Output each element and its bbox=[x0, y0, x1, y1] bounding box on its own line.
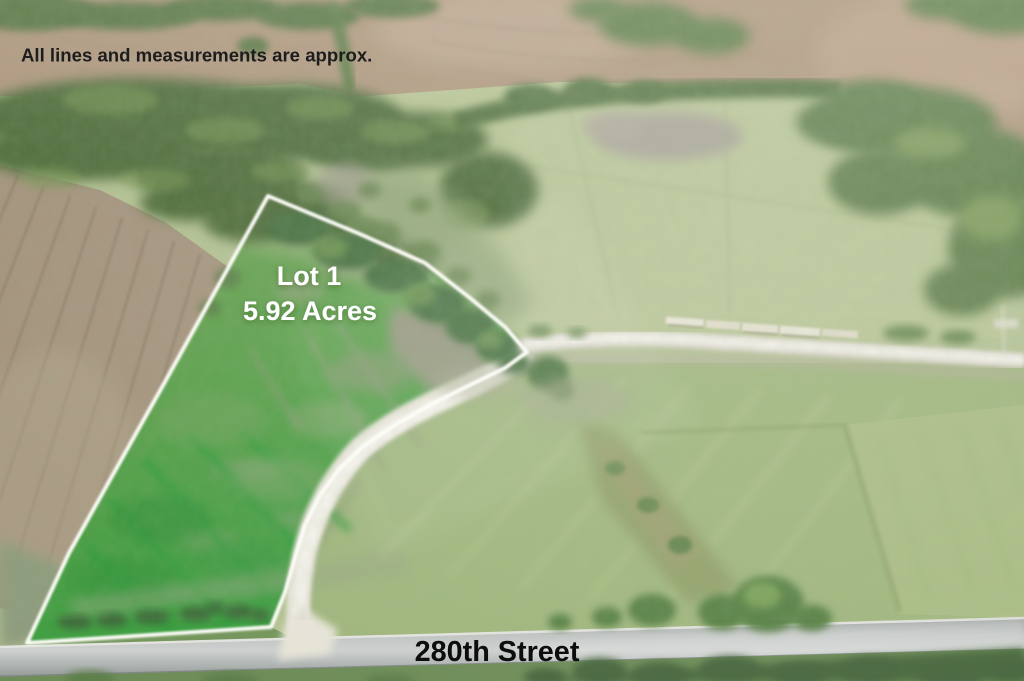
svg-text:Lot 1: Lot 1 bbox=[277, 261, 342, 291]
svg-text:5.92 Acres: 5.92 Acres bbox=[243, 296, 377, 326]
svg-text:All lines and measurements are: All lines and measurements are approx. bbox=[21, 45, 372, 66]
svg-text:280th Street: 280th Street bbox=[415, 636, 580, 668]
